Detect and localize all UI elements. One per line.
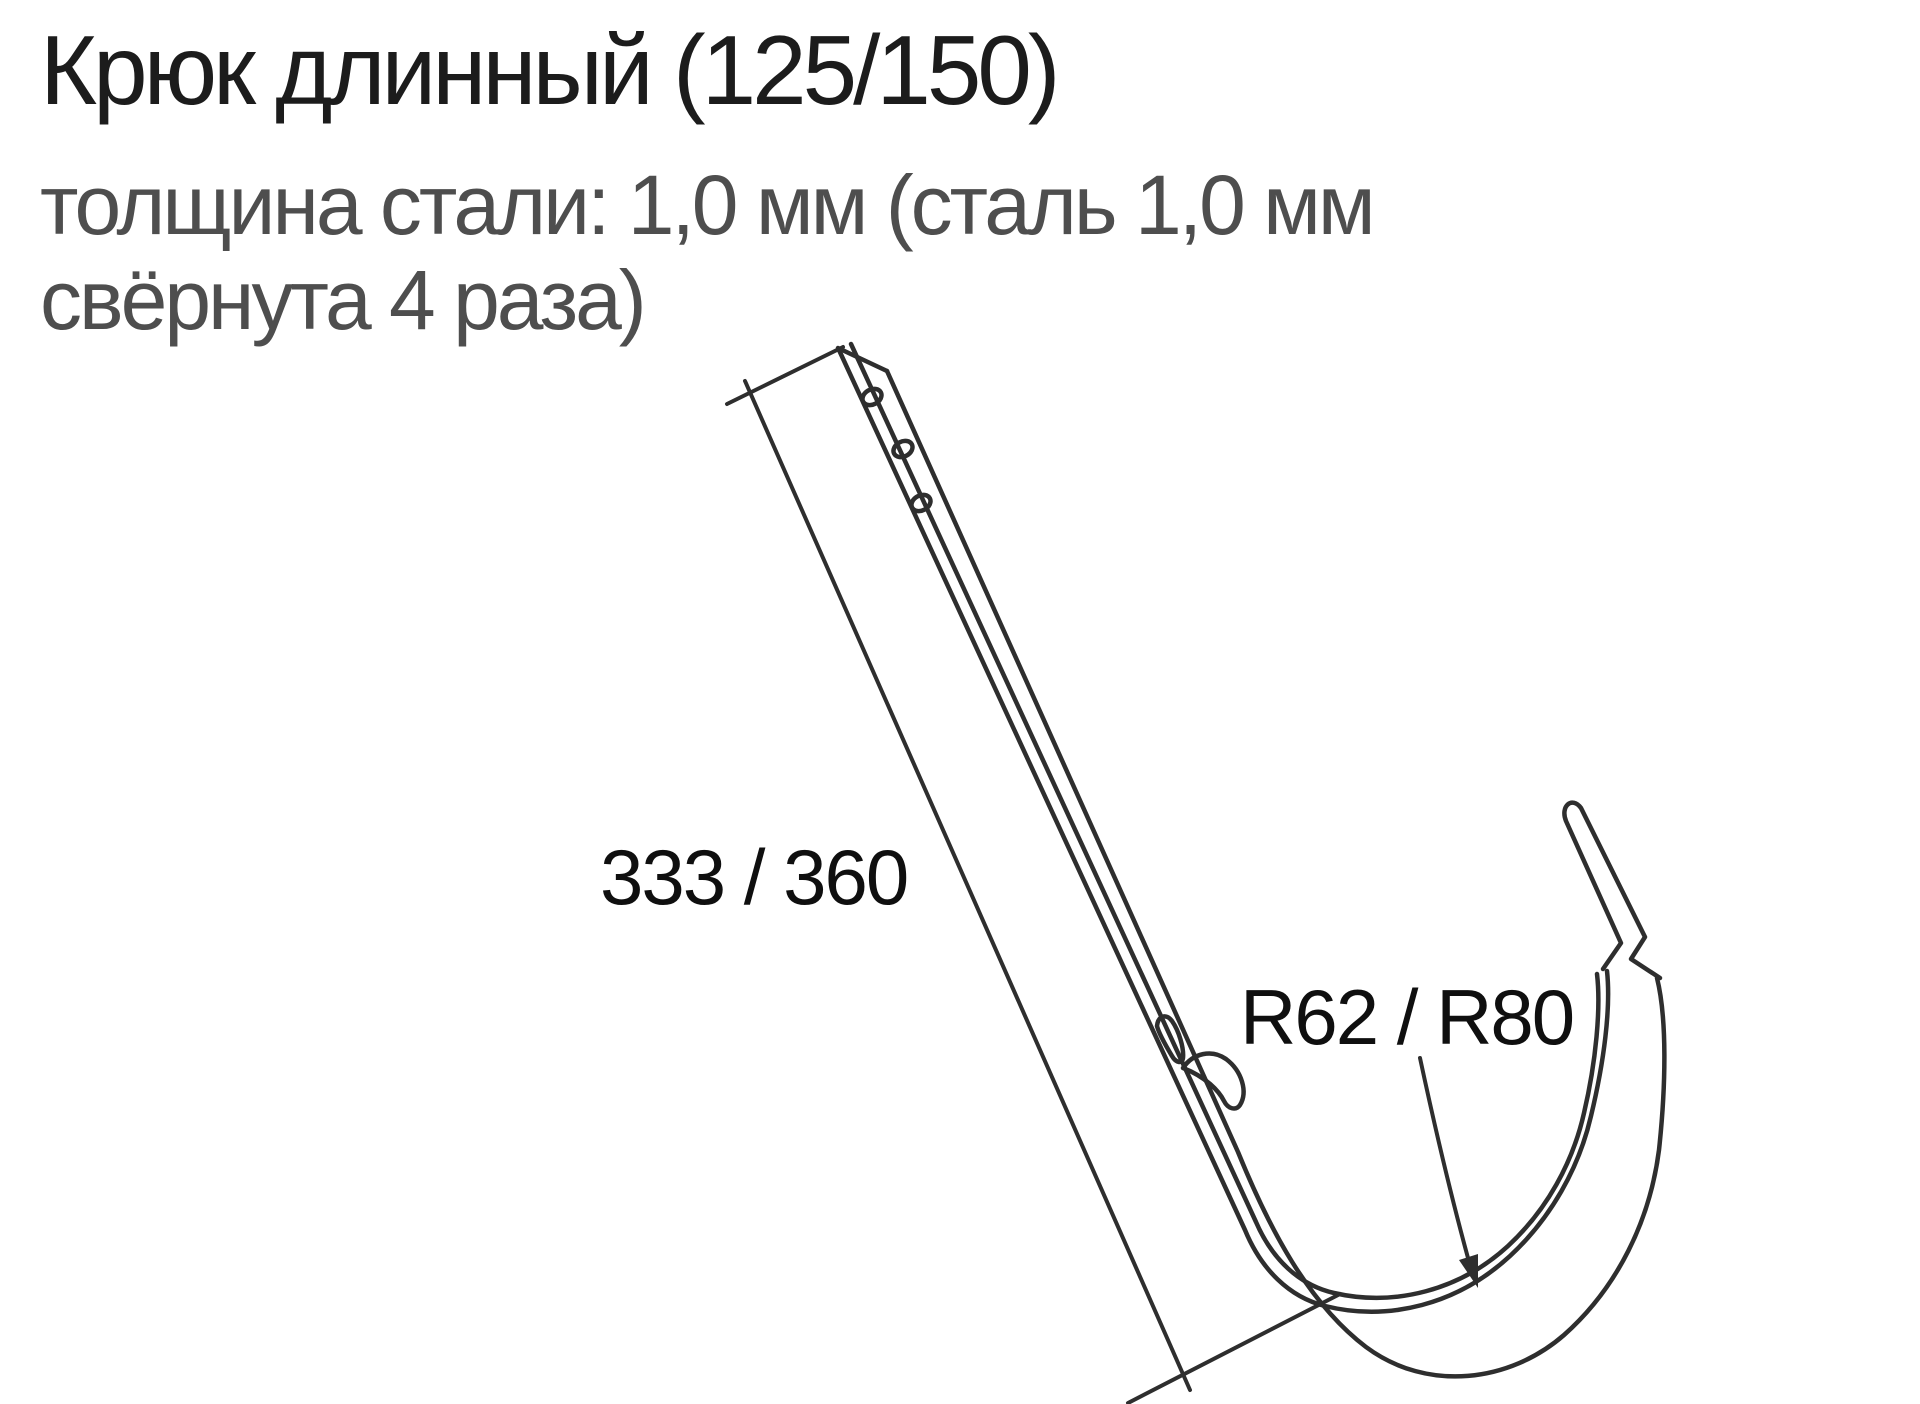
radius-dimension-label: R62 / R80 [1240,972,1573,1063]
strap-left-edge-outer [851,344,1598,1298]
length-dimension-label: 333 / 360 [600,832,907,923]
hook-tail [1564,803,1660,978]
radius-leader-line [1420,1058,1468,1258]
extension-line-bottom [1128,1294,1340,1403]
gutter-hook-technical-drawing [0,0,1920,1404]
strap-right-edge-hook-outer [887,371,1664,1376]
page: Крюк длинный (125/150) толщина стали: 1,… [0,0,1920,1404]
strap-left-edge-inner [839,350,1608,1312]
radius-arrowhead-icon [1459,1254,1478,1288]
extension-line-top [727,347,843,404]
